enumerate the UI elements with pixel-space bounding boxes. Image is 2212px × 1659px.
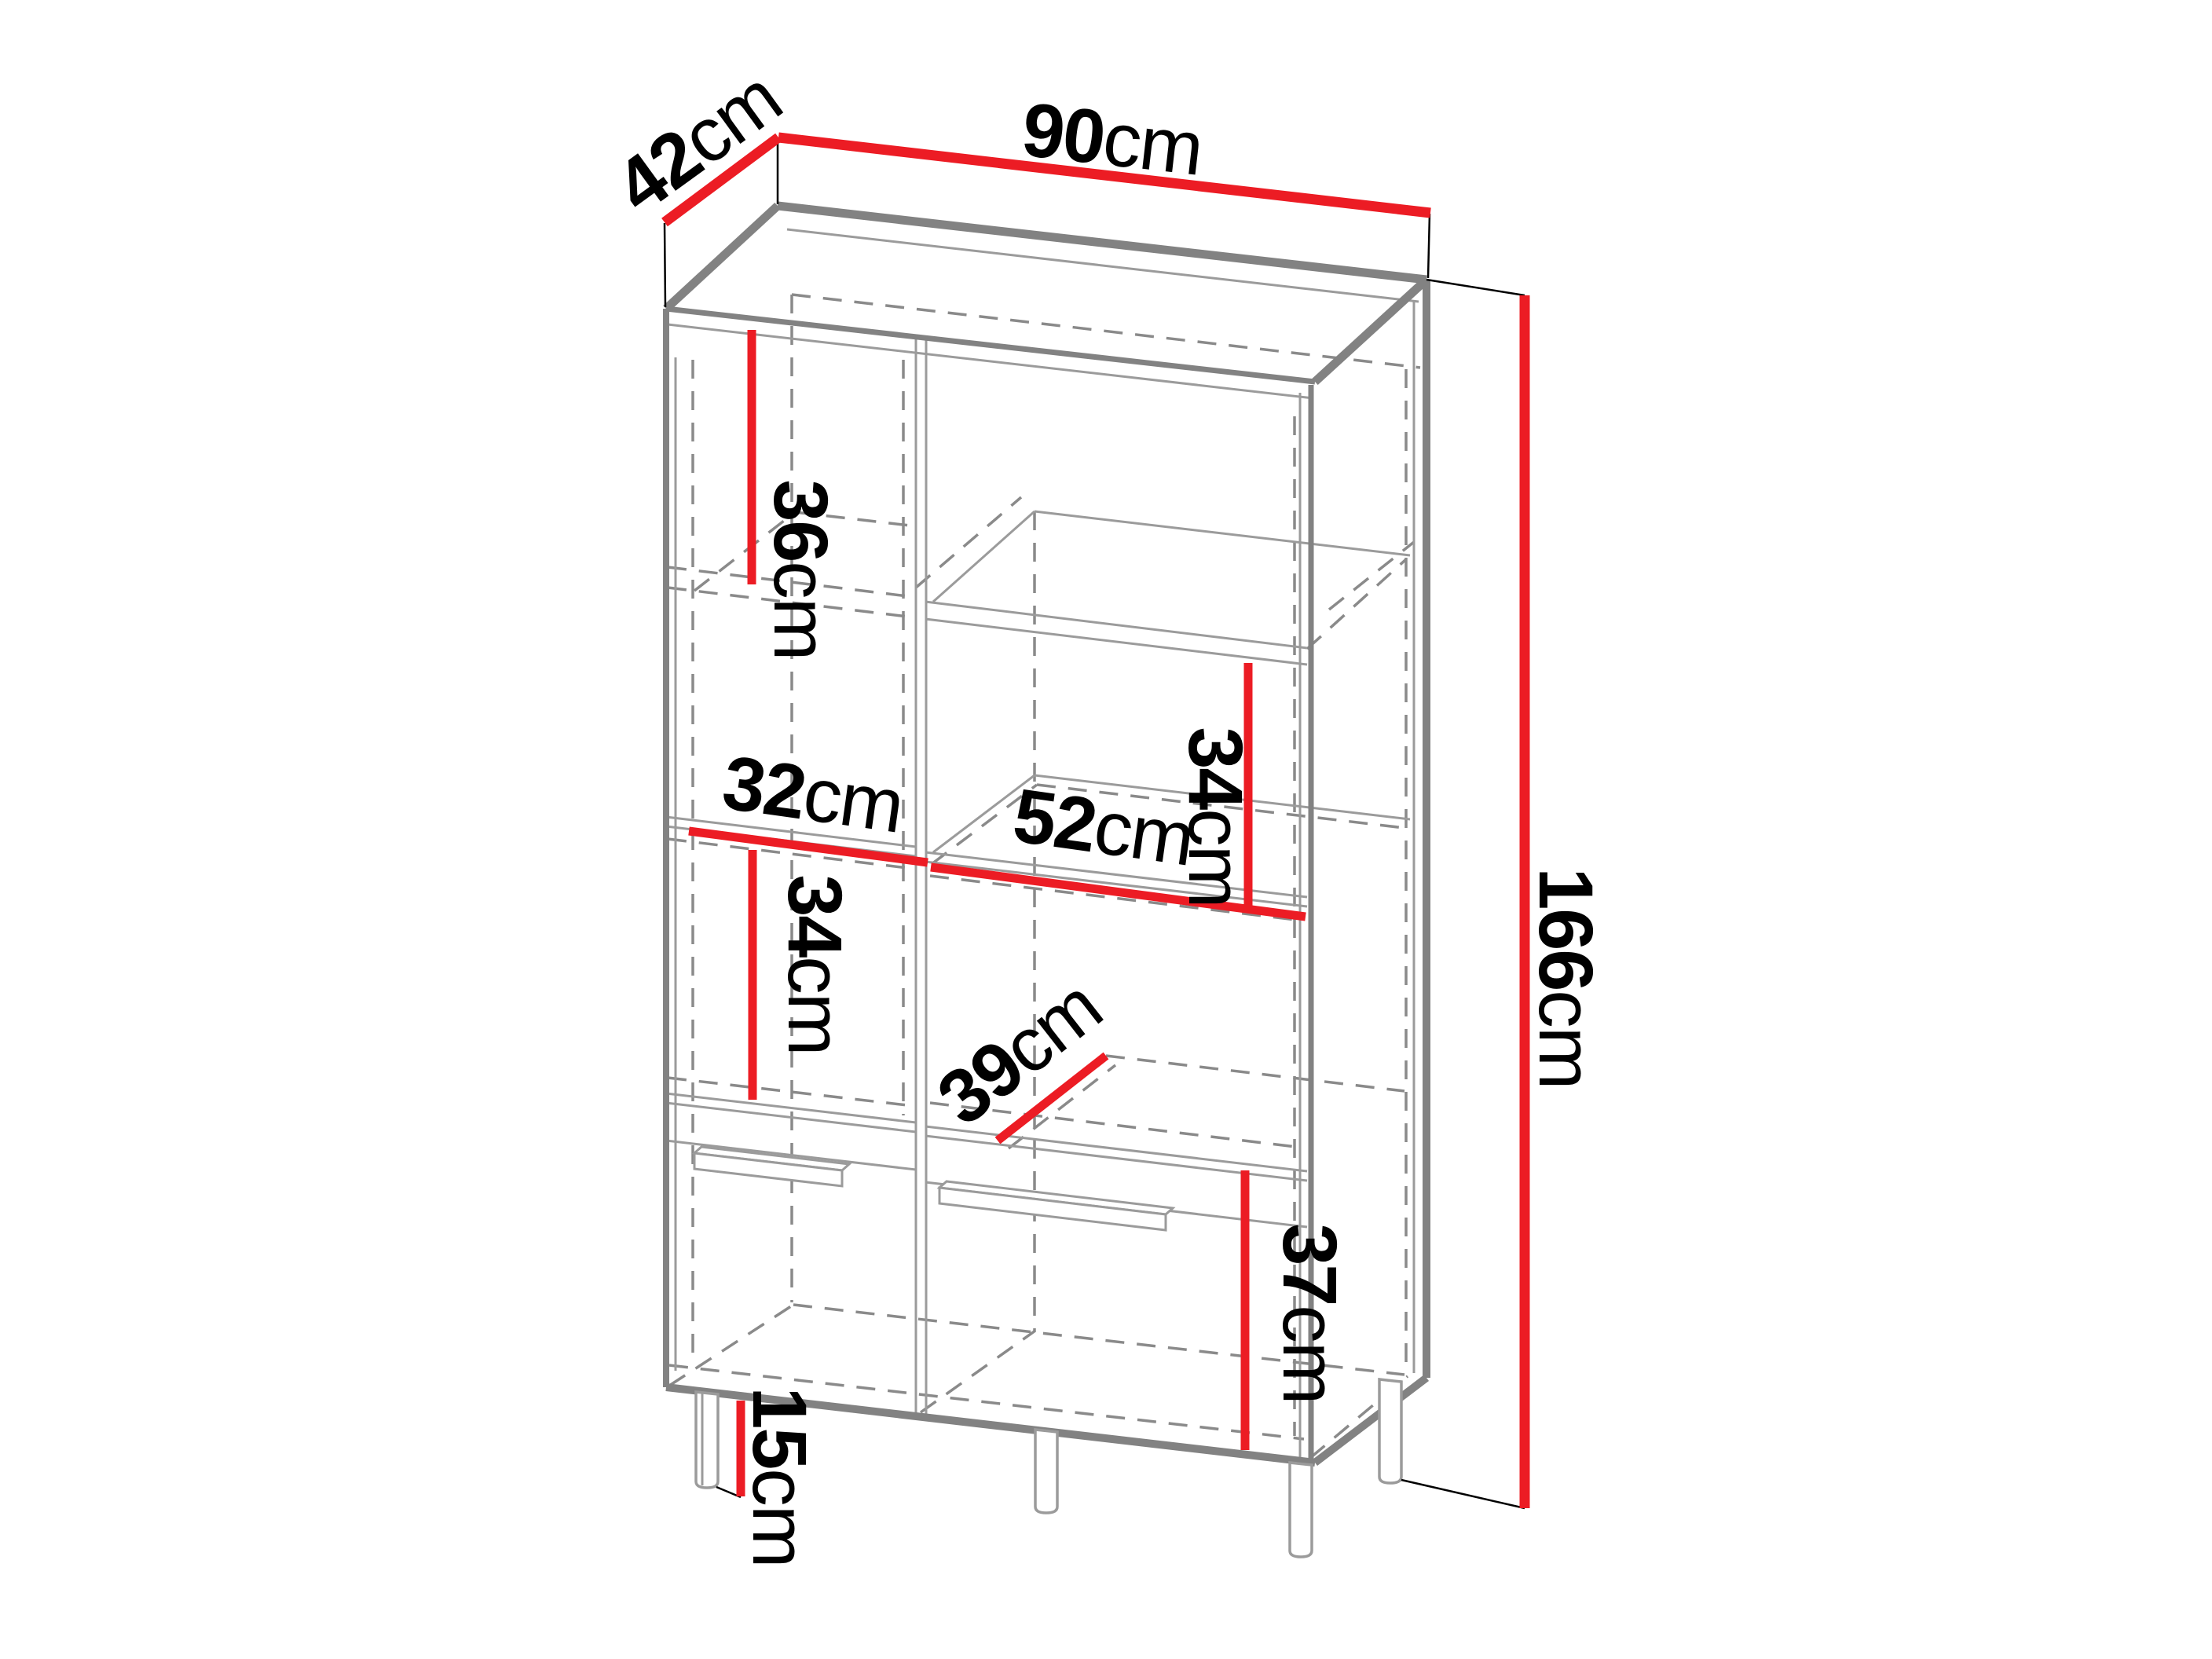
label-34cm-left: 34cm (772, 874, 858, 1054)
cabinet-drawing: 90cm 42cm 166cm 36cm 32cm 52cm 34cm 34cm… (0, 0, 2212, 1659)
label-15cm: 15cm (737, 1386, 822, 1566)
label-36cm: 36cm (758, 479, 844, 659)
front-left-leg (696, 1392, 718, 1488)
label-166cm: 166cm (1523, 867, 1609, 1088)
front-middle-leg (1035, 1430, 1057, 1513)
label-39cm: 39cm (922, 963, 1117, 1141)
label-32cm: 32cm (718, 739, 908, 849)
dimension-diagram: 90cm 42cm 166cm 36cm 32cm 52cm 34cm 34cm… (0, 0, 2212, 1659)
front-right-leg (1290, 1463, 1312, 1557)
door-handles (694, 1147, 1173, 1230)
label-37cm: 37cm (1267, 1223, 1353, 1403)
label-90cm: 90cm (1018, 86, 1207, 192)
back-right-leg (1379, 1379, 1401, 1483)
dimension-labels: 90cm 42cm 166cm 36cm 32cm 52cm 34cm 34cm… (600, 54, 1609, 1566)
label-34cm-right: 34cm (1173, 727, 1258, 906)
